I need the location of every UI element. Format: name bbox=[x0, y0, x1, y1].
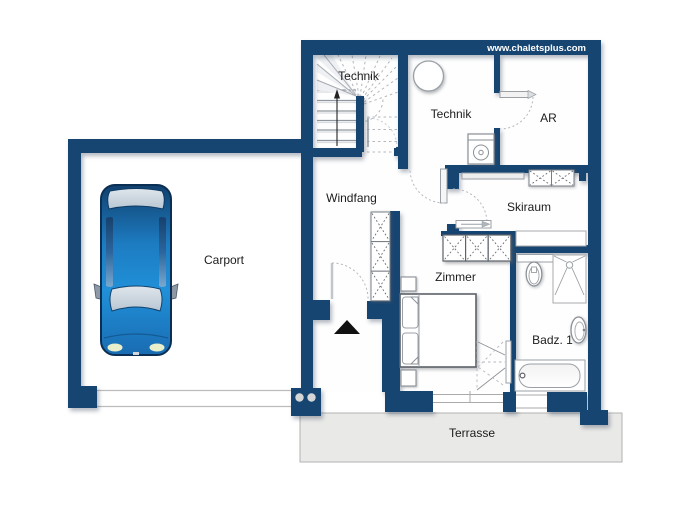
svg-text:Windfang: Windfang bbox=[326, 191, 377, 205]
svg-text:Technik: Technik bbox=[431, 107, 473, 121]
svg-text:Skiraum: Skiraum bbox=[507, 200, 551, 214]
svg-text:Zimmer: Zimmer bbox=[435, 270, 476, 284]
svg-text:Carport: Carport bbox=[204, 253, 245, 267]
svg-text:www.chaletsplus.com: www.chaletsplus.com bbox=[486, 43, 586, 54]
svg-text:Badz. 1: Badz. 1 bbox=[532, 333, 573, 347]
svg-text:AR: AR bbox=[540, 111, 557, 125]
svg-text:Terrasse: Terrasse bbox=[449, 426, 495, 440]
svg-text:Technik: Technik bbox=[338, 69, 380, 83]
